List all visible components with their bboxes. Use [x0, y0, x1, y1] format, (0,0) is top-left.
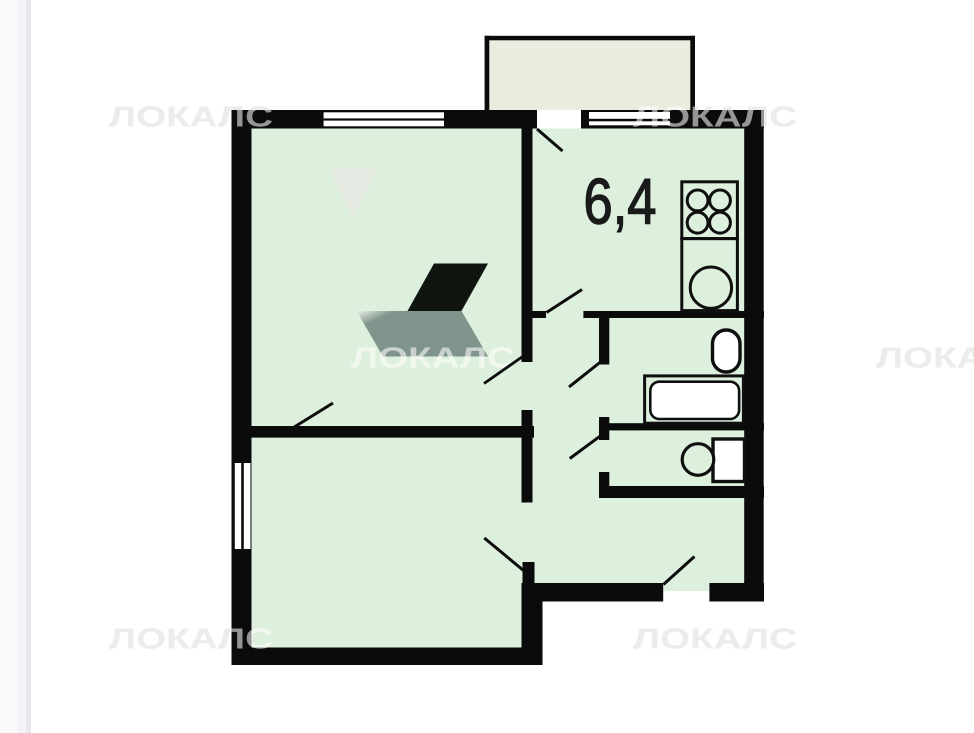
svg-text:ЛОКАЛС: ЛОКАЛС: [633, 624, 797, 656]
svg-text:ЛОКАЛС: ЛОКАЛС: [109, 624, 273, 656]
svg-text:6,4: 6,4: [584, 165, 657, 237]
svg-text:ЛОКАЛС: ЛОКАЛС: [876, 343, 974, 375]
svg-text:ЛОКАЛС: ЛОКАЛС: [351, 343, 515, 375]
svg-text:ЛОКАЛС: ЛОКАЛС: [109, 102, 273, 134]
svg-text:ЛОКАЛС: ЛОКАЛС: [633, 102, 797, 134]
